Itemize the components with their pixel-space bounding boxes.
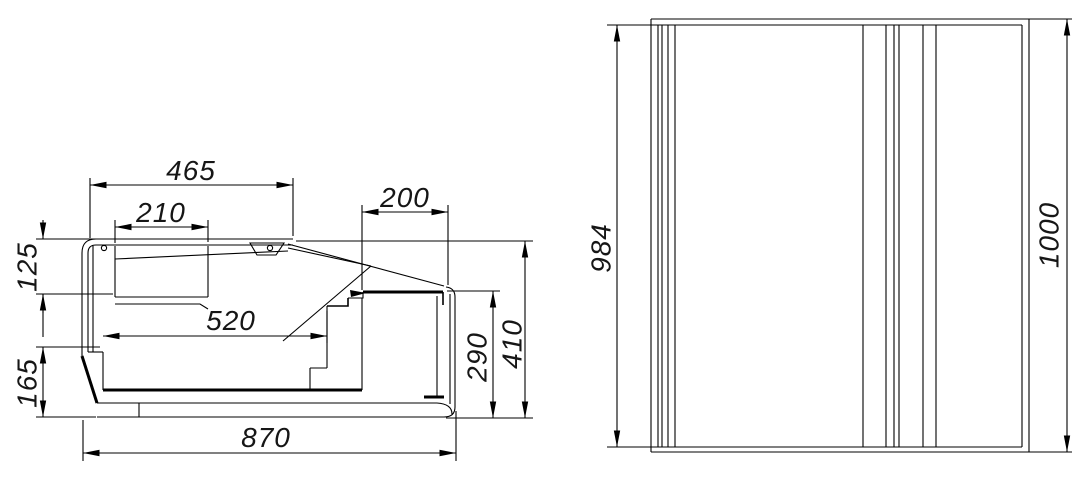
dim-label-1000: 1000 <box>1034 202 1065 268</box>
side-section-view: 465 210 200 520 870 <box>12 155 534 461</box>
plan-view: 984 1000 <box>586 19 1073 452</box>
dim-label-210: 210 <box>135 197 186 228</box>
dim-label-200: 200 <box>379 182 430 213</box>
dim-label-465: 465 <box>166 155 216 186</box>
plan-outline <box>651 19 1072 452</box>
drawing-canvas: 465 210 200 520 870 <box>0 0 1088 478</box>
dim-label-520: 520 <box>206 305 256 336</box>
dim-label-290: 290 <box>462 332 493 383</box>
dim-label-125: 125 <box>12 242 43 292</box>
machinery-block <box>103 292 444 397</box>
pivot-hole-icon <box>267 245 272 250</box>
technical-drawing-svg: 465 210 200 520 870 <box>0 0 1088 478</box>
dim-label-984: 984 <box>586 223 617 273</box>
dim-label-165: 165 <box>12 358 43 408</box>
mount-hole-icon <box>101 245 106 250</box>
front-bumper-line <box>82 356 97 403</box>
dim-label-410: 410 <box>497 319 528 369</box>
dim-label-870: 870 <box>241 422 291 453</box>
